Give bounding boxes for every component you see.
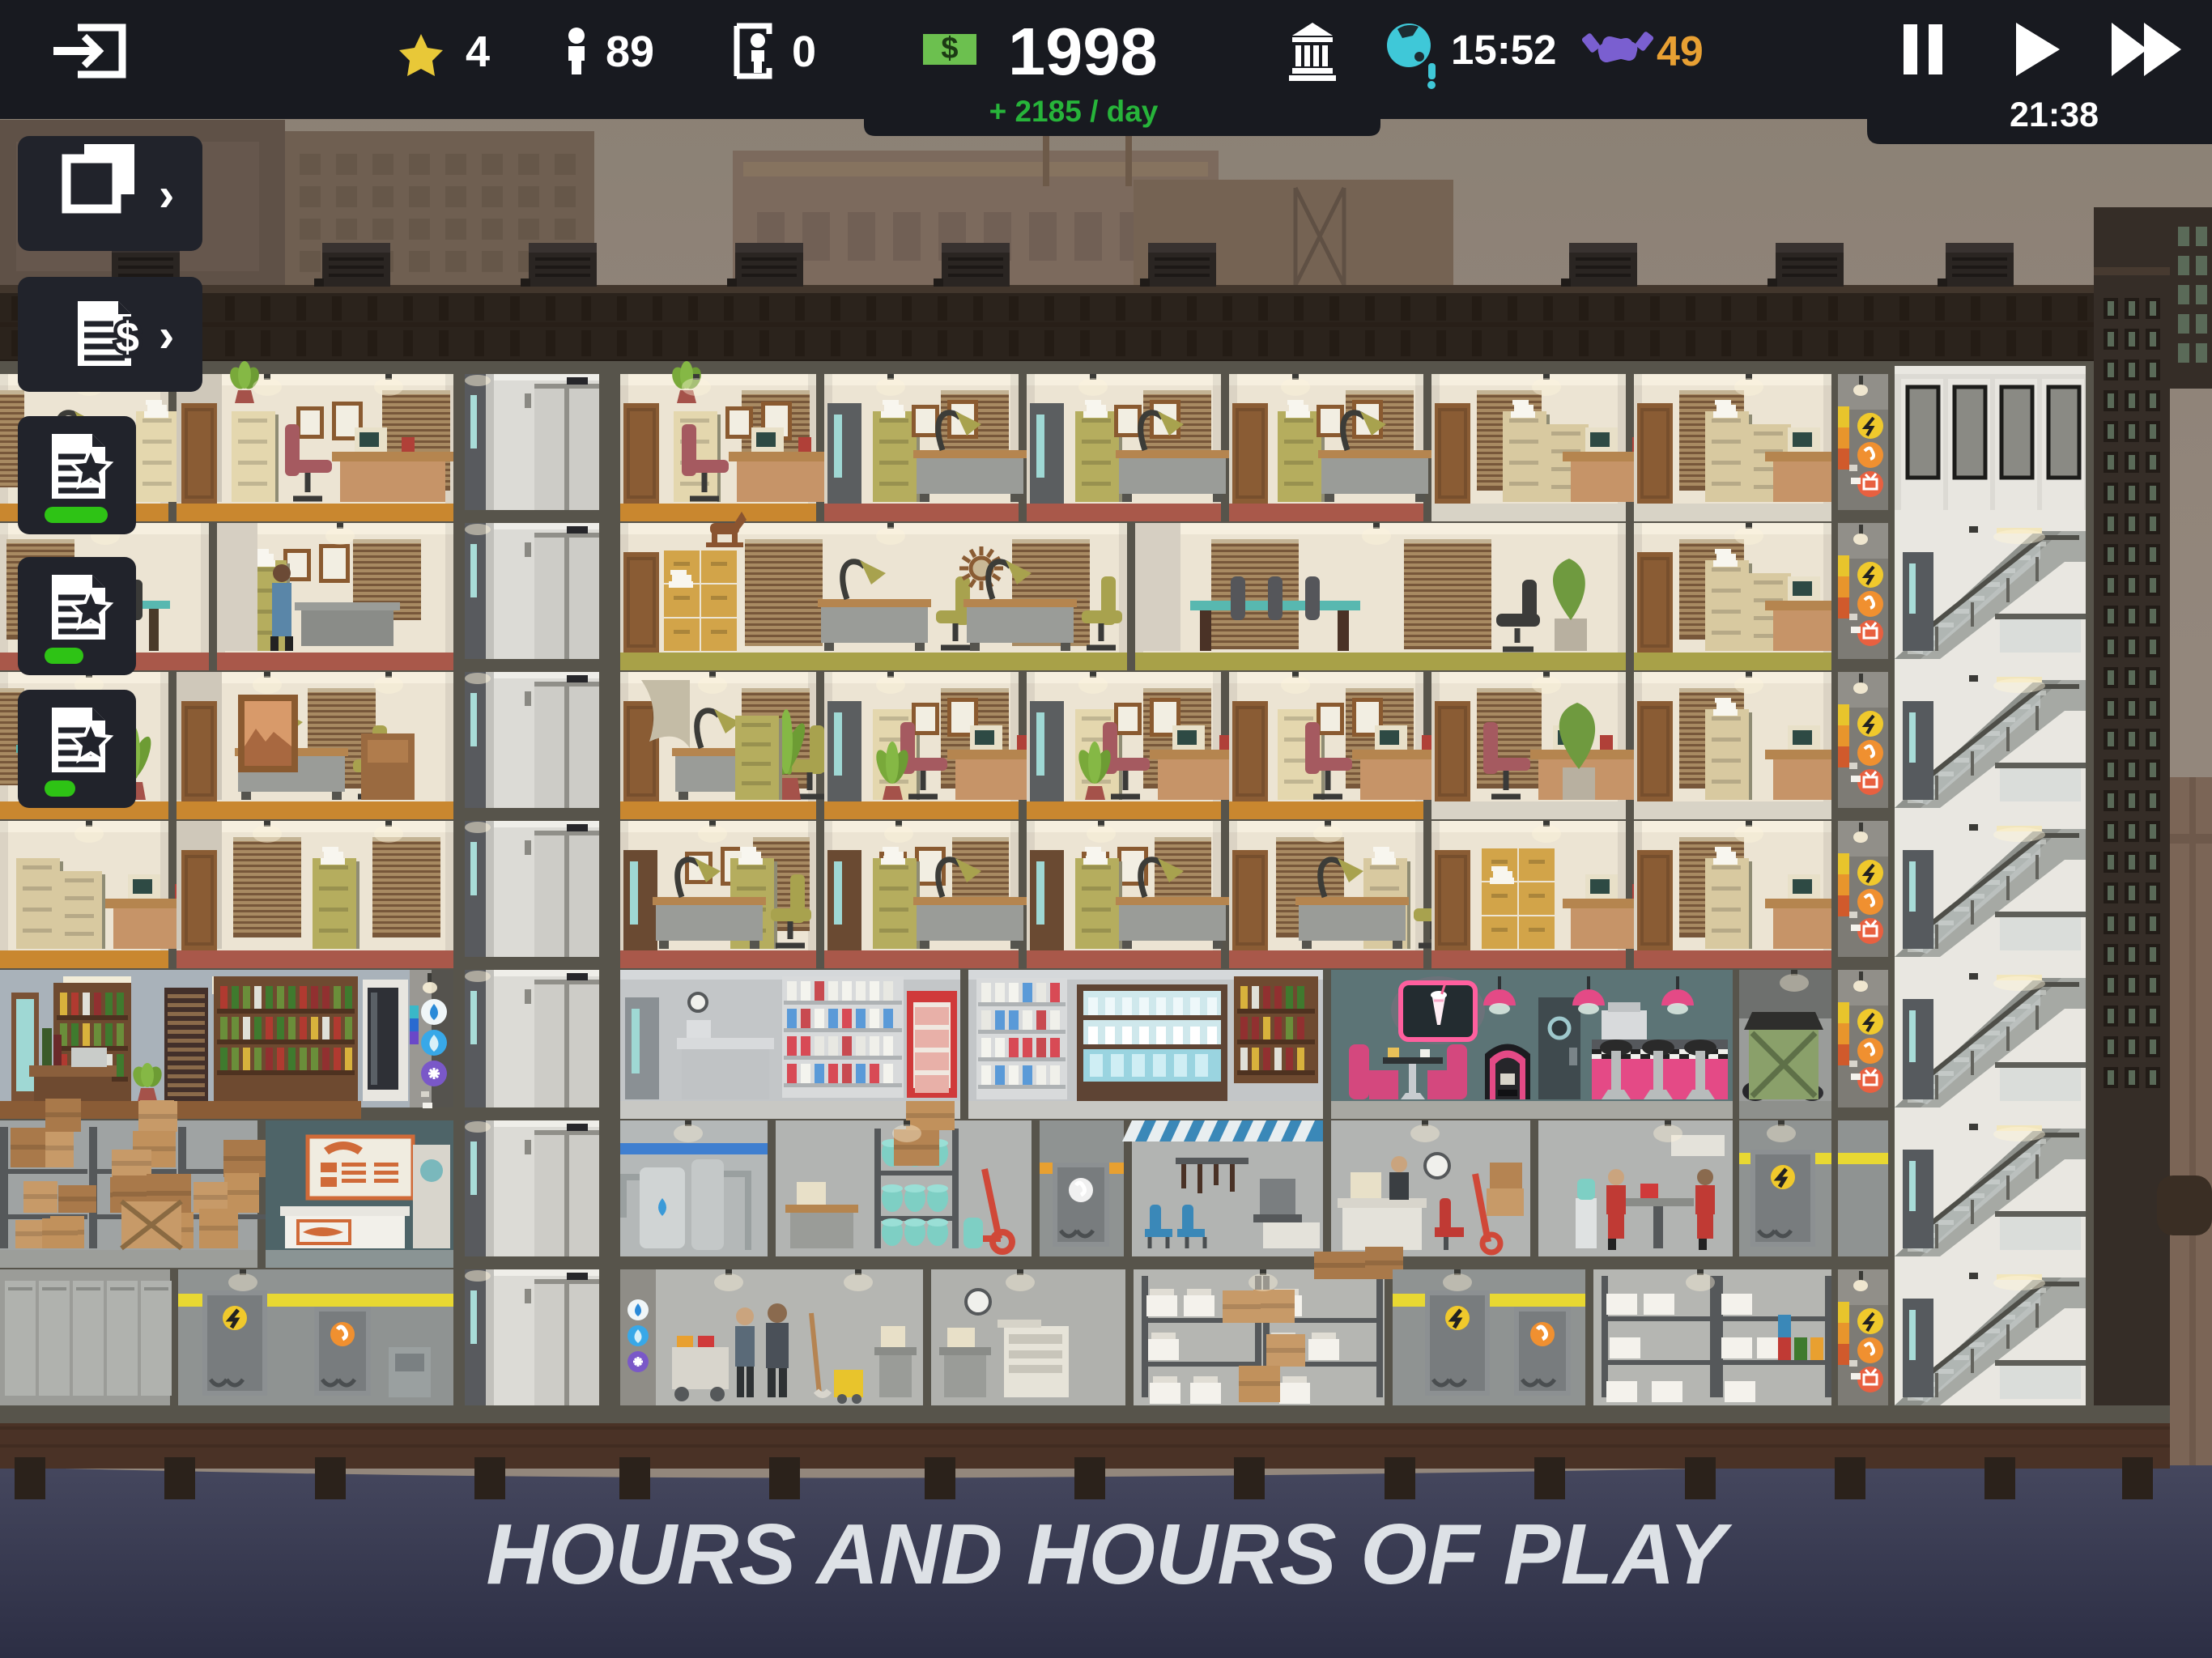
svg-text:›: › xyxy=(159,168,174,221)
svg-text:49: 49 xyxy=(1657,28,1704,75)
svg-text:89: 89 xyxy=(606,28,654,76)
svg-text:4: 4 xyxy=(466,28,490,76)
svg-text:0: 0 xyxy=(792,28,816,76)
svg-text:›: › xyxy=(159,309,174,362)
svg-text:$: $ xyxy=(941,32,958,66)
svg-text:21:38: 21:38 xyxy=(2010,96,2099,134)
svg-text:HOURS AND HOURS OF PLAY: HOURS AND HOURS OF PLAY xyxy=(486,1507,1732,1602)
svg-text:+ 2185 / day: + 2185 / day xyxy=(989,95,1159,128)
svg-text:$: $ xyxy=(116,314,139,361)
svg-text:15:52: 15:52 xyxy=(1451,27,1556,73)
svg-text:1998: 1998 xyxy=(1008,14,1158,89)
